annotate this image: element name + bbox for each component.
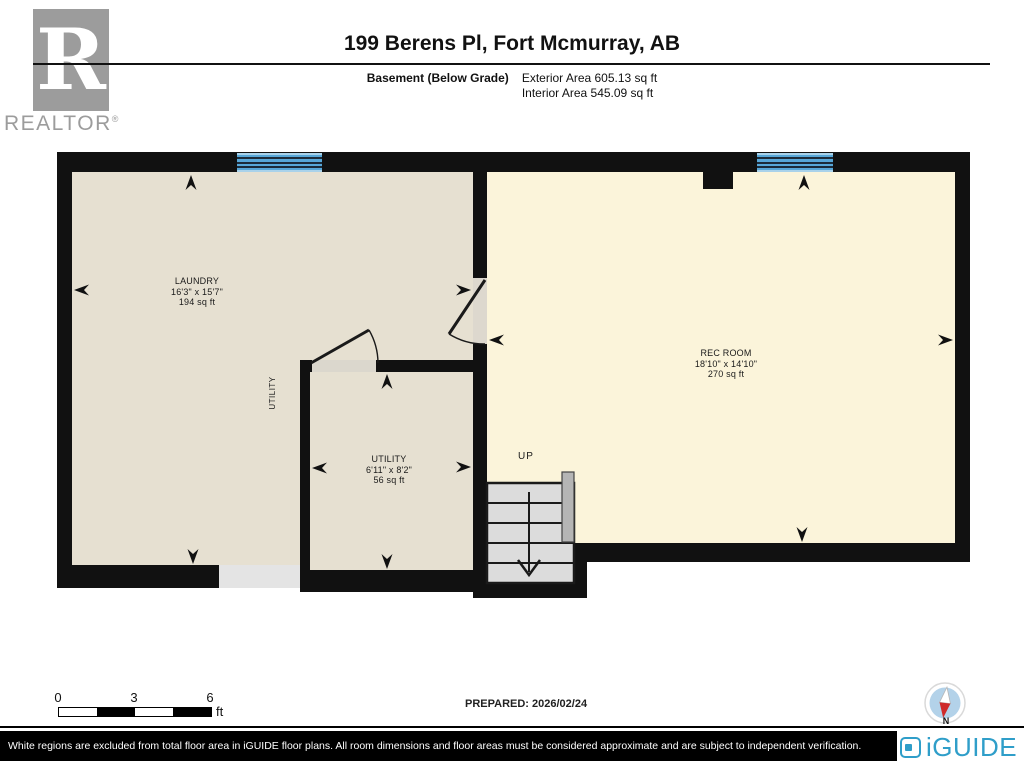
- room-area: 270 sq ft: [626, 369, 826, 380]
- room-name: LAUNDRY: [97, 276, 297, 287]
- registered-mark: ®: [112, 114, 120, 124]
- iguide-logo: iGUIDE: [900, 732, 1017, 762]
- realtor-word-text: REALTOR: [4, 112, 112, 135]
- laundry-label: LAUNDRY 16'3" x 15'7" 194 sq ft: [97, 276, 297, 308]
- scale-tick-0: 0: [51, 690, 65, 705]
- area-summary: Exterior Area 605.13 sq ft Interior Area…: [522, 71, 657, 101]
- scale-segment: [135, 708, 173, 716]
- window-pane-line: [757, 157, 833, 159]
- room-area: 194 sq ft: [97, 297, 297, 308]
- room-dims: 6'11" x 8'2": [309, 465, 469, 476]
- scale-segment: [59, 708, 97, 716]
- stairs-down-arrow: [518, 560, 540, 575]
- middle-wall-lower: [473, 344, 487, 583]
- below-grade-opening: [219, 565, 300, 588]
- rec-bottom-wall: [563, 543, 970, 562]
- stair-bottom-wall: [473, 583, 587, 598]
- page-title: 199 Berens Pl, Fort Mcmurray, AB: [0, 32, 1024, 56]
- top-wall: [57, 152, 970, 172]
- footer-disclaimer-bar: White regions are excluded from total fl…: [0, 731, 897, 761]
- scale-segment: [173, 708, 211, 716]
- room-area: 56 sq ft: [309, 475, 469, 486]
- scale-tick-6: 6: [203, 690, 217, 705]
- window-pane-line: [237, 166, 322, 168]
- scale-tick-3: 3: [127, 690, 141, 705]
- floor-name-label: Basement (Below Grade): [367, 71, 509, 86]
- floorplan-page: R REALTOR® 199 Berens Pl, Fort Mcmurray,…: [0, 0, 1024, 762]
- scale-bar: [58, 707, 212, 717]
- scale-segment: [97, 708, 135, 716]
- scale-unit-label: ft: [216, 704, 223, 719]
- right-wall: [955, 152, 970, 562]
- window-pane-line: [757, 162, 833, 164]
- window-pane-line: [237, 162, 322, 164]
- left-wall: [57, 152, 72, 588]
- disclaimer-text: White regions are excluded from total fl…: [0, 740, 861, 752]
- window-pane-line: [757, 166, 833, 168]
- utility-door-opening: [312, 360, 376, 372]
- utility-label: UTILITY 6'11" x 8'2" 56 sq ft: [309, 454, 469, 486]
- prepared-date: PREPARED: 2026/02/24: [465, 698, 587, 710]
- footer-divider: [0, 726, 1024, 728]
- laundry-window: [237, 153, 322, 172]
- interior-area: Interior Area 545.09 sq ft: [522, 86, 657, 101]
- middle-wall-upper: [473, 172, 487, 278]
- room-dims: 16'3" x 15'7": [97, 287, 297, 298]
- realtor-logo-word: REALTOR®: [4, 112, 134, 136]
- window-pane-line: [237, 157, 322, 159]
- room-name: UTILITY: [309, 454, 469, 465]
- header-divider: [33, 63, 990, 65]
- iguide-brand-text: iGUIDE: [926, 732, 1017, 762]
- room-name: REC ROOM: [626, 348, 826, 359]
- iguide-icon: [900, 737, 921, 758]
- rec-room-label: REC ROOM 18'10" x 14'10" 270 sq ft: [626, 348, 826, 380]
- wall-notch: [703, 172, 733, 189]
- up-stairs-label: UP: [505, 451, 547, 462]
- floor-summary: Basement (Below Grade) Exterior Area 605…: [0, 71, 1024, 101]
- rec-room-window: [757, 153, 833, 172]
- exterior-area: Exterior Area 605.13 sq ft: [522, 71, 657, 86]
- utility-vertical-label: UTILITY: [258, 367, 288, 419]
- middle-door-opening: [473, 278, 487, 344]
- room-dims: 18'10" x 14'10": [626, 359, 826, 370]
- utility-bottom-wall: [300, 570, 487, 592]
- compass-north-label: N: [936, 716, 956, 726]
